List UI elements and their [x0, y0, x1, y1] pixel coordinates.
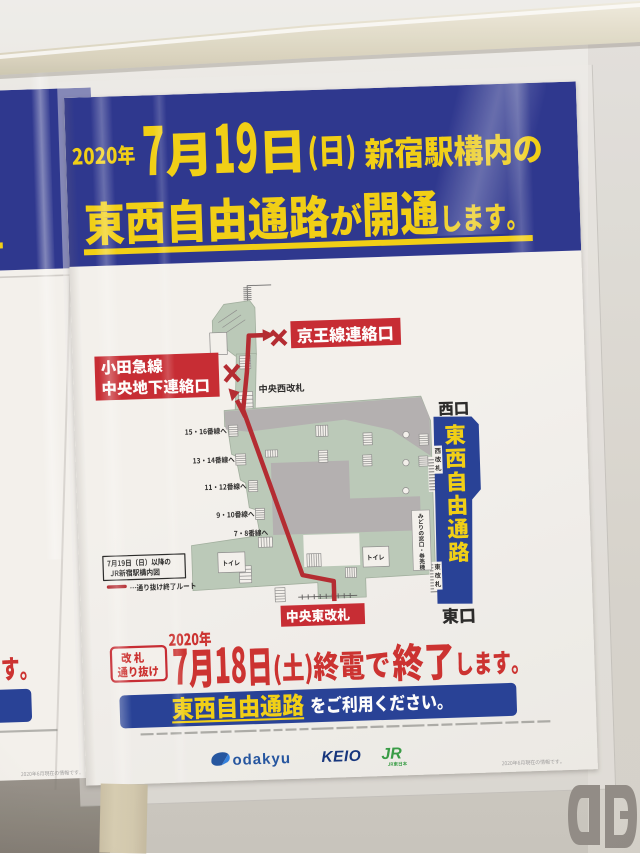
svg-text:KEIO: KEIO [321, 748, 361, 766]
svg-text:odakyu: odakyu [232, 750, 291, 769]
svg-text:JR: JR [381, 745, 402, 763]
